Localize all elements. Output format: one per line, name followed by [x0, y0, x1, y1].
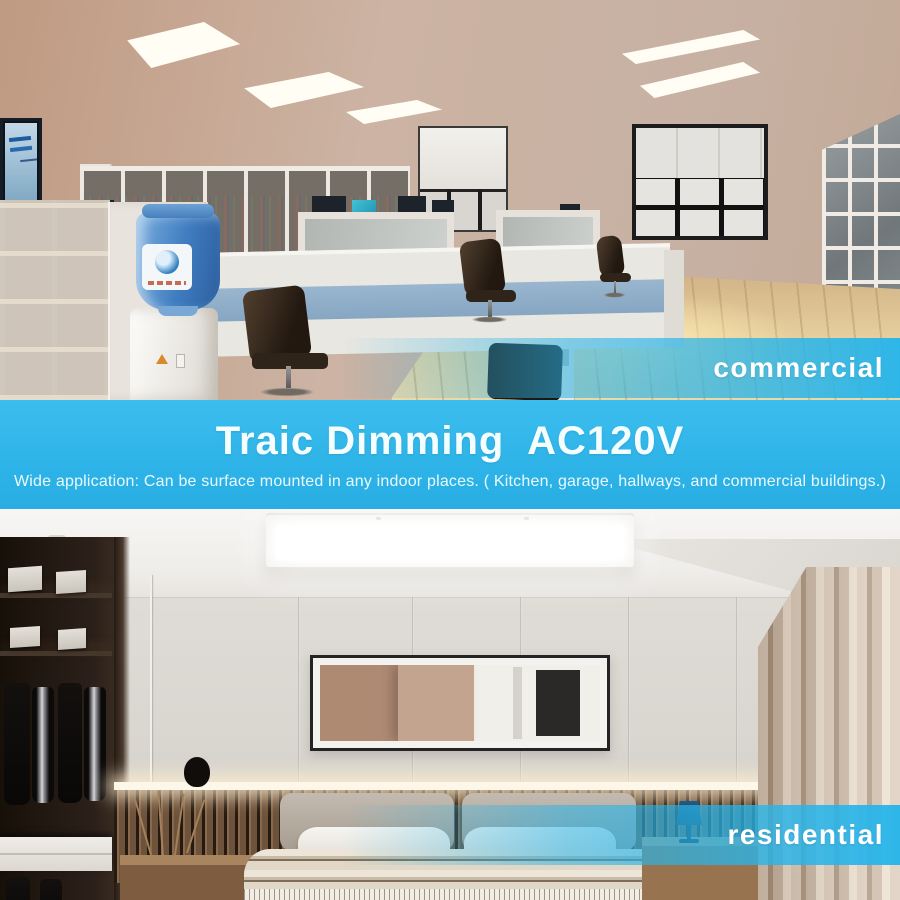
- led-panel: [640, 62, 760, 98]
- storage-box: [8, 566, 42, 592]
- linear-led-fixture: [266, 513, 634, 567]
- backlit-ledge: [114, 782, 790, 790]
- wall-trim: [150, 575, 152, 791]
- partition-return: [664, 250, 684, 348]
- residential-label: residential: [727, 819, 900, 851]
- chair-back: [596, 235, 626, 279]
- office-chair: [462, 240, 528, 326]
- fixture-screw: [524, 517, 529, 520]
- chair-post: [614, 281, 616, 293]
- led-panel: [238, 72, 364, 108]
- wall-panel-seam: [628, 597, 630, 797]
- artwork-block-light-tan: [398, 665, 474, 741]
- monitor: [432, 200, 454, 212]
- wall-panel-seam: [298, 597, 300, 797]
- wall-artwork: [310, 655, 610, 751]
- window-grid-panes: [636, 178, 764, 236]
- office-chair: [598, 236, 638, 300]
- office-window-right: [632, 124, 768, 240]
- artwork-stripe: [513, 667, 521, 738]
- black-vase: [184, 757, 210, 787]
- bottle-logo: [155, 250, 179, 274]
- hanging-garment: [84, 687, 106, 801]
- roller-blinds: [636, 128, 764, 183]
- storage-box: [10, 626, 40, 648]
- bottle-label: [142, 244, 192, 290]
- storage-box: [56, 570, 86, 594]
- duvet-hem: [244, 889, 668, 900]
- chair-post: [488, 300, 491, 316]
- hanging-garment: [6, 877, 30, 900]
- banner: Traic Dimming AC120V Wide application: C…: [0, 400, 900, 509]
- chair-base: [602, 292, 627, 298]
- water-bottle-top: [142, 204, 214, 218]
- led-panel: [342, 100, 442, 124]
- bottle-label-text: [148, 281, 186, 285]
- artwork-canvas: [320, 665, 600, 741]
- product-infographic: commercial Traic Dimming AC120V Wide app…: [0, 0, 900, 900]
- artwork-block-dark: [536, 670, 581, 737]
- chair-back: [459, 238, 506, 298]
- led-glow: [276, 525, 624, 559]
- led-panel: [120, 22, 240, 68]
- tv-crane-image: [9, 136, 31, 142]
- banner-subtitle: Wide application: Can be surface mounted…: [14, 473, 886, 491]
- commercial-label: commercial: [713, 352, 900, 384]
- monitor: [398, 196, 426, 212]
- hanging-garment: [40, 879, 62, 900]
- hanging-garment: [58, 683, 82, 803]
- hanging-garment: [32, 687, 54, 803]
- water-bottle-neck: [158, 306, 198, 316]
- commercial-scene-photo: commercial: [0, 0, 900, 400]
- banner-title: Traic Dimming AC120V: [216, 419, 685, 464]
- roller-blind: [420, 128, 506, 192]
- storage-box: [58, 628, 86, 650]
- wall-panel-seam: [736, 597, 738, 797]
- hanging-garment: [4, 683, 30, 805]
- residential-label-band: residential: [0, 805, 900, 865]
- chair-base: [469, 316, 510, 324]
- residential-scene-photo: residential: [0, 509, 900, 900]
- led-panel: [622, 30, 760, 64]
- commercial-label-band: commercial: [0, 338, 900, 398]
- fixture-screw: [376, 517, 381, 520]
- wardrobe-shelf: [0, 651, 112, 656]
